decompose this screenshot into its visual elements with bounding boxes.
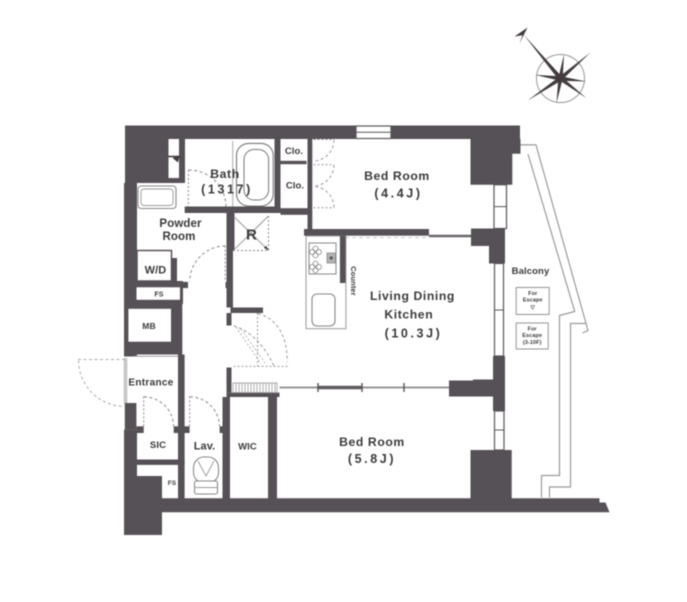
svg-text:(10.3J): (10.3J) [385,327,443,341]
svg-text:(1317): (1317) [201,183,253,197]
svg-text:Counter: Counter [349,266,358,295]
svg-text:Living Dining: Living Dining [370,289,455,303]
svg-text:Entrance: Entrance [128,378,173,389]
svg-text:For: For [528,327,538,333]
svg-text:Bath: Bath [210,167,239,181]
svg-text:(4.4J): (4.4J) [374,187,422,201]
svg-text:▽: ▽ [530,305,536,311]
svg-text:Escape: Escape [523,298,543,304]
svg-text:Room: Room [163,231,196,243]
svg-text:W/D: W/D [145,265,167,277]
svg-text:SIC: SIC [150,440,166,451]
svg-text:Clo.: Clo. [286,181,304,192]
svg-text:FS: FS [154,292,163,299]
svg-text:Clo.: Clo. [285,146,303,157]
svg-text:Bed Room: Bed Room [339,435,405,449]
svg-text:FS: FS [168,480,177,487]
svg-text:Escape: Escape [522,333,542,339]
svg-text:For: For [528,291,538,297]
svg-text:Powder: Powder [159,218,202,230]
svg-text:Balcony: Balcony [512,266,550,277]
svg-text:R: R [246,227,257,244]
svg-text:Bed Room: Bed Room [364,169,430,183]
svg-text:MB: MB [142,321,155,331]
svg-text:Lav.: Lav. [194,441,216,453]
svg-text:Kitchen: Kitchen [384,308,433,322]
svg-text:(5.8J): (5.8J) [348,452,396,466]
svg-text:(3-10F): (3-10F) [523,340,542,346]
svg-text:WIC: WIC [238,442,257,453]
